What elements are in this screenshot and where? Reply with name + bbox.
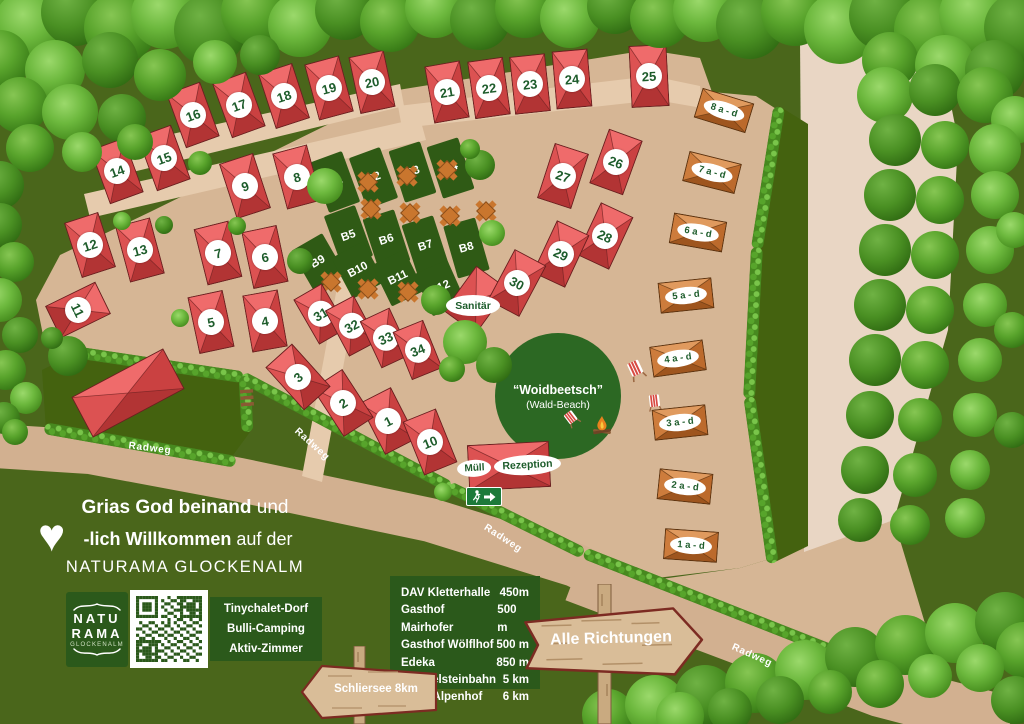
arrow-right-icon [484,492,496,502]
tree-icon [421,285,451,315]
tree-icon [909,64,961,116]
tree-icon [287,248,313,274]
sanitaer-label: Sanitär [446,295,500,316]
pitch-label: B5 [339,228,357,244]
tree-icon [838,498,882,542]
pitch-label: B10 [346,260,370,281]
tree-icon [155,216,173,234]
campfire-icon [539,415,665,440]
tree-icon [854,279,906,331]
tree-icon [864,169,916,221]
welcome-willkommen: -lich Willkommen [84,529,232,549]
tree-icon [42,84,98,140]
logo-top: NATU [73,611,120,626]
qr-code [130,590,208,668]
tree-icon [841,446,889,494]
tree-icon [41,327,63,349]
tree-icon [890,505,930,545]
tree-icon [916,176,964,224]
tree-icon [307,168,343,204]
logo-flourish-icon [72,648,122,657]
tree-icon [434,483,452,501]
runner-icon [472,490,482,503]
alle-richtungen-sign: Alle Richtungen [522,584,712,724]
welcome-greeting: Grias God beinand [82,497,252,518]
tree-icon [228,217,246,235]
tinychalet-2a-d: 2 a - d [657,468,714,504]
tree-icon [476,347,512,383]
woidbeetsch-area: “Woidbeetsch” (Wald-Beach) [495,333,621,459]
amenity-item: Bulli-Camping [227,619,305,639]
welcome-line-3: NATURAMA GLOCKENALM [55,558,315,577]
tree-icon [2,317,38,353]
site-name: NATURAMA GLOCKENALM [66,558,304,576]
tree-icon [869,114,921,166]
tree-icon [953,393,997,437]
schliersee-sign: Schliersee 8km [298,646,438,724]
welcome-line-1: Grias God beinand und [55,497,315,519]
poi-name: Gasthof Mairhofer [401,602,497,637]
reception-building: Müll Rezeption [467,441,551,491]
tree-icon [113,212,131,230]
tree-icon [994,312,1024,348]
tree-icon [193,40,237,84]
pitch-label: B6 [377,232,395,248]
tree-icon [479,220,505,246]
tree-icon [188,151,212,175]
tree-icon [906,286,954,334]
naturama-logo: NATU RAMA GLOCKENALM [66,592,128,667]
poi-name: DAV Kletterhalle [401,585,490,602]
pitch-label: B7 [416,238,434,254]
tree-icon [856,660,904,708]
tree-icon [460,139,480,159]
signpost-icon [522,584,712,724]
tree-icon [996,212,1024,248]
pitch-label: B8 [457,240,474,256]
tree-icon [117,124,153,160]
wooden-gate-icon [240,389,254,408]
cabin-24: 24 [552,49,593,110]
tinychalet-1a-d: 1 a - d [663,528,719,563]
tree-icon [857,67,913,123]
tree-icon [708,688,752,724]
logo-bottom: RAMA [72,626,123,641]
tree-icon [849,334,901,386]
tree-icon [439,356,465,382]
amenity-item: Tinychalet-Dorf [224,599,308,619]
tree-icon [2,419,28,445]
exit-sign [466,487,502,506]
distance-row: Gasthof Mairhofer 500 m [401,602,529,637]
tree-icon [945,498,985,538]
tree-icon [898,398,942,442]
tree-icon [958,338,1002,382]
tree-icon [756,676,804,724]
logo-flourish-icon [72,602,122,611]
tree-icon [893,453,937,497]
welcome-rest: und [257,497,289,518]
tree-icon [62,132,102,172]
tinychalet-3a-d: 3 a - d [652,404,709,440]
tree-icon [969,124,1021,176]
amenity-item: Aktiv-Zimmer [229,639,303,659]
schliersee-label: Schliersee 8km [318,683,434,695]
tree-icon [994,412,1024,448]
welcome-line-2: -lich Willkommen auf der [58,529,318,550]
tree-icon [950,450,990,490]
sanitaer-text: Sanitär [455,300,491,312]
welcome-rest2: auf der [236,529,292,549]
campground-site-map: Sanitär Müll Rezeption “Woidbeetsch” (Wa… [0,0,1024,724]
tree-icon [808,670,852,714]
cabin-25: 25 [628,44,669,108]
tree-icon [240,35,280,75]
tree-icon [846,391,894,439]
tree-icon [134,49,186,101]
tree-icon [901,341,949,389]
tinychalet-5a-d: 5 a - d [658,277,715,313]
tree-icon [911,231,959,279]
tree-icon [859,224,911,276]
tree-icon [171,309,189,327]
tree-icon [908,654,952,698]
tree-icon [921,121,969,169]
tree-icon [82,32,138,88]
distance-row: DAV Kletterhalle 450m [401,585,529,602]
cabin-23: 23 [509,53,551,114]
